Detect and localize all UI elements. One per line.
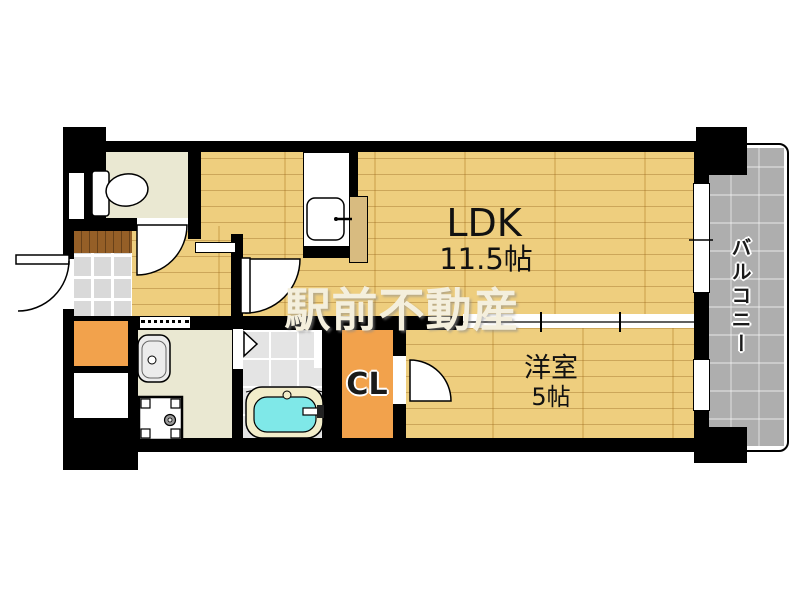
toilet-icon [92, 171, 150, 216]
closet-label: CL [337, 368, 397, 401]
western-size-label: 5帖 [501, 384, 601, 410]
kitchen-sink-icon [307, 198, 352, 240]
washbasin-icon [138, 335, 170, 382]
toilet-door [137, 225, 187, 275]
watermark-text: 駅前不動産 [268, 274, 536, 340]
bathtub-icon [246, 387, 324, 438]
bathroom-folding-door [244, 332, 257, 356]
western-room-label: 洋室 [501, 354, 601, 384]
western-room-door [410, 360, 451, 401]
ldk-room-label: LDK [404, 203, 564, 245]
floor-plan: LDK 11.5帖 洋室 5帖 CL バルコニー 駅前不動産 [0, 0, 800, 600]
ldk-size-label: 11.5帖 [396, 244, 576, 276]
balcony-label: バルコニー [729, 212, 751, 382]
washing-machine-pan-icon [139, 397, 182, 440]
entrance-door [16, 255, 69, 311]
